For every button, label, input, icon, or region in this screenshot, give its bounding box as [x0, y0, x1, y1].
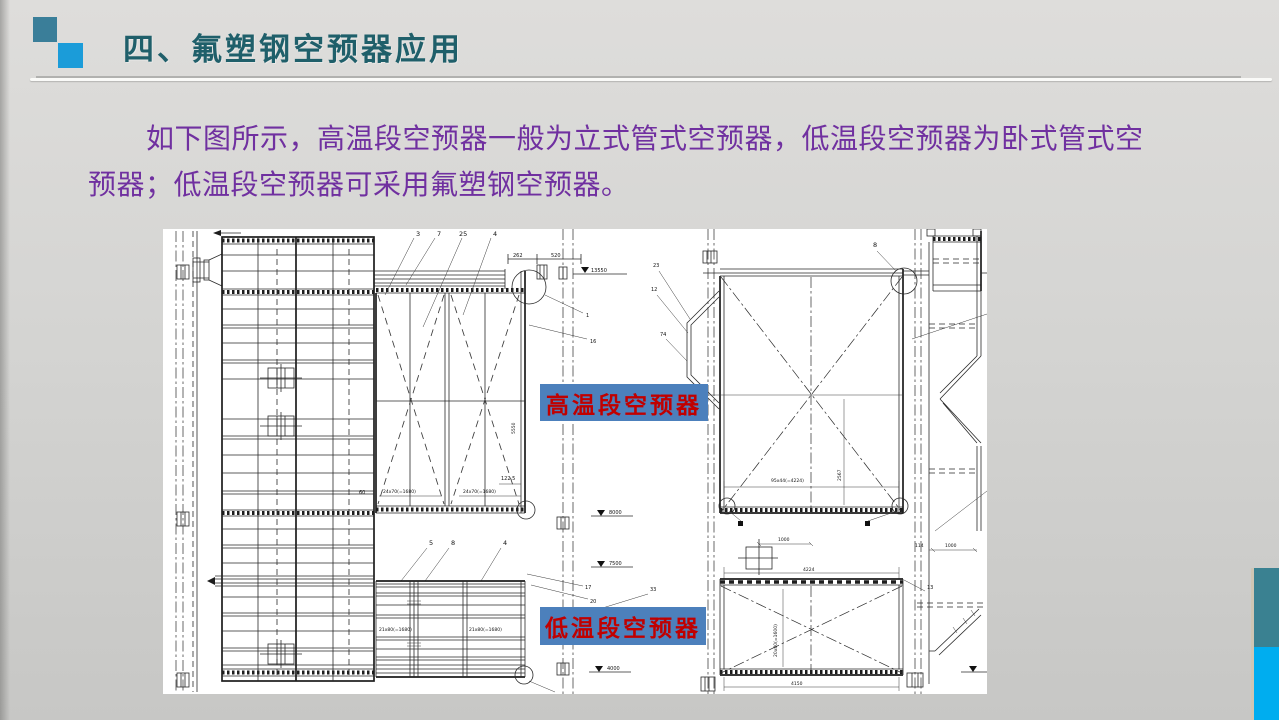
callout-17: 17	[585, 585, 591, 591]
high-temp-aph: 262 520 13550 3 7 25 4 1 16 122.5 24x70(…	[359, 230, 627, 519]
callout-12: 12	[651, 287, 657, 293]
decor-square-blue	[58, 43, 83, 68]
mid-callouts: 5 8 4 17 20 33	[401, 539, 656, 614]
body-paragraph: 如下图所示，高温段空预器一般为立式管式空预器，低温段空预器为卧式管式空 预器；低…	[88, 116, 1158, 208]
dim-60: 60	[359, 490, 365, 496]
callout-4b: 4	[503, 539, 507, 547]
boiler-rear-pass-grid	[207, 237, 374, 681]
high-temp-aph-label: 高温段空预器	[540, 384, 708, 421]
dim-tube-row-high-2: 24x70(=1680)	[463, 489, 496, 495]
elevation-4000: 4000	[607, 666, 620, 672]
callout-23: 23	[653, 263, 659, 269]
callout-1: 1	[586, 313, 589, 319]
engineering-drawing-panel: 262 520 13550 3 7 25 4 1 16 122.5 24x70(…	[163, 229, 987, 694]
decor-square-teal	[33, 17, 57, 42]
dim-panel-width: 95x44(=4224)	[771, 478, 804, 484]
callout-13: 13	[927, 585, 933, 591]
body-line-2: 预器；低温段空预器可采用氟塑钢空预器。	[88, 162, 1158, 208]
callout-3: 3	[416, 230, 420, 238]
dim-tube-row-low-1: 21x80(=1680)	[379, 627, 412, 633]
dim-4150: 4150	[791, 681, 803, 687]
callout-74: 74	[660, 332, 666, 338]
dim-1000: 1000	[778, 537, 790, 543]
dim-1000b: 1000	[945, 543, 957, 549]
callout-20: 20	[590, 599, 596, 605]
callout-4: 4	[493, 230, 497, 238]
dim-520: 520	[551, 253, 561, 259]
page-title: 四、氟塑钢空预器应用	[123, 24, 463, 69]
presentation-slide: 四、氟塑钢空预器应用 如下图所示，高温段空预器一般为立式管式空预器，低温段空预器…	[0, 0, 1279, 720]
callout-16: 16	[590, 339, 596, 345]
dim-2567: 2567	[837, 469, 843, 481]
elevation-7500: 7500	[609, 561, 622, 567]
elevation-13550: 13550	[591, 268, 607, 274]
low-temp-aph-label: 低温段空预器	[540, 607, 706, 645]
elevation-8000: 8000	[609, 510, 622, 516]
column-centerlines-left	[176, 231, 197, 692]
callout-7: 7	[437, 230, 441, 238]
sidebar-bar-blue	[1254, 647, 1279, 720]
callout-8b: 8	[873, 241, 877, 249]
dim-122-5: 122.5	[501, 476, 515, 482]
dim-4224: 4224	[803, 567, 815, 573]
dim-tube-col-low2: 20x80(=1600)	[773, 624, 779, 657]
callout-25: 25	[459, 230, 467, 238]
dim-tube-row-low-2: 21x80(=1680)	[469, 627, 502, 633]
callout-33: 33	[650, 587, 656, 593]
dim-5550: 5550	[511, 422, 517, 434]
elevation-marks: 8000 7500 4000	[589, 510, 987, 672]
body-line-1: 如下图所示，高温段空预器一般为立式管式空预器，低温段空预器为卧式管式空	[88, 116, 1158, 162]
dim-262: 262	[513, 253, 523, 259]
inlet-stub	[193, 230, 241, 286]
dim-tube-row-high-1: 24x70(=1680)	[383, 489, 416, 495]
title-divider-highlight	[30, 78, 1272, 81]
low-temp-aph: 21x80(=1680) 21x80(=1680)	[376, 581, 555, 692]
callout-8: 8	[451, 539, 455, 547]
dim-114: 114	[915, 543, 924, 549]
callout-5: 5	[429, 539, 433, 547]
sidebar-bar-teal	[1254, 568, 1279, 647]
